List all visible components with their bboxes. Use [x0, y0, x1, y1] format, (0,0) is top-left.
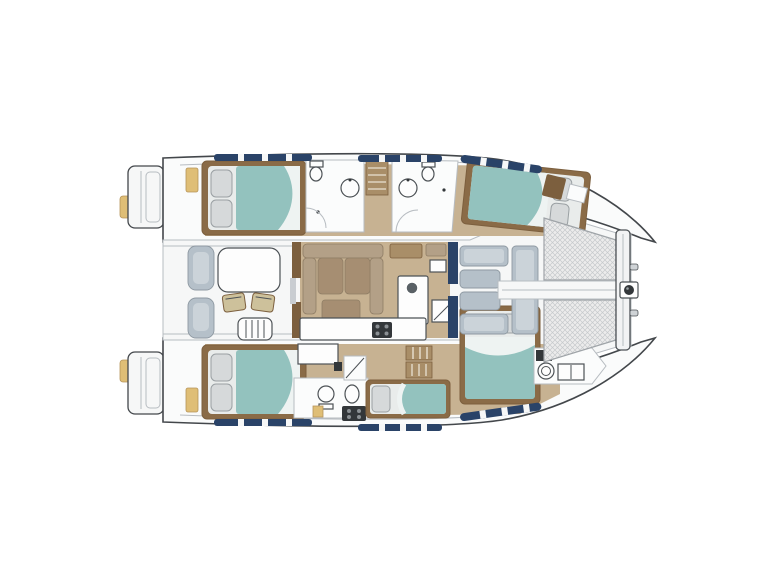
head-port-aft: [306, 160, 364, 232]
floorplan-canvas: Catamaran sailing yacht accommodation la…: [0, 0, 768, 576]
head-port-forward: [392, 160, 458, 232]
bath-locker: [313, 406, 323, 417]
galley-shelves: [406, 346, 432, 360]
galley-counter: [300, 318, 426, 340]
cabin-locker: [186, 168, 198, 192]
pillow: [211, 354, 232, 381]
catamaran-floorplan: Catamaran sailing yacht accommodation la…: [0, 0, 768, 576]
single-berth: [366, 380, 450, 418]
faucet: [407, 179, 410, 182]
sink: [399, 179, 417, 197]
window-strip-starboard-mid: [358, 424, 442, 431]
toilet-tank: [310, 161, 323, 167]
cabin-port-aft: [186, 161, 306, 235]
vanity-sink: [334, 362, 342, 371]
pillow: [211, 384, 232, 411]
shower-drain: [442, 188, 445, 191]
swim-platform-starboard: [120, 352, 164, 414]
galley-sink: [406, 282, 418, 294]
vanity-counter: [298, 344, 338, 364]
sink: [345, 385, 359, 403]
bow-cleat: [630, 310, 638, 316]
pillow: [211, 200, 232, 227]
anchor-roller: [624, 285, 634, 295]
toilet: [422, 167, 434, 181]
salon-cabinet: [390, 244, 422, 258]
salon-sofa: [303, 244, 383, 320]
cockpit-chair-right: [251, 293, 275, 313]
lounge-cushion: [460, 292, 500, 310]
toilet-tank: [422, 162, 435, 167]
window-strip-port-aft: [214, 154, 312, 161]
toilet: [538, 363, 554, 379]
cockpit-chair-left: [222, 293, 246, 313]
sofa-seat-cushion: [318, 258, 343, 294]
toilet: [318, 386, 334, 402]
bow-cleat: [630, 264, 638, 270]
lounge-cushion: [460, 270, 500, 288]
toilet: [310, 167, 322, 181]
berth-duvet: [400, 384, 446, 414]
nav-seat: [426, 244, 446, 256]
bath-appliance: [342, 406, 366, 421]
bow-crossbeam: [616, 230, 638, 350]
salon-coffee-table: [322, 300, 360, 320]
cockpit-steps: [238, 318, 272, 340]
window-strip-starboard-aft: [214, 419, 312, 426]
cabin-locker: [186, 388, 198, 412]
shower-stall: [344, 356, 366, 380]
head-starboard: [294, 344, 368, 421]
pillow: [372, 386, 390, 412]
stairs-port: [366, 161, 388, 195]
salon-bulkhead-upper: [292, 242, 301, 278]
swim-platform-port: [120, 166, 164, 228]
galley-stove: [372, 322, 392, 338]
sofa-seat-cushion: [345, 258, 370, 294]
cabin-starboard-aft: [186, 345, 306, 419]
window-strip-port-mid: [358, 155, 442, 162]
nav-table: [430, 260, 446, 272]
stairs-starboard: [406, 362, 432, 378]
sink: [341, 179, 359, 197]
salon-sliding-door: [290, 278, 296, 304]
pillow: [211, 170, 232, 197]
cockpit-table: [218, 248, 280, 292]
faucet: [349, 179, 352, 182]
